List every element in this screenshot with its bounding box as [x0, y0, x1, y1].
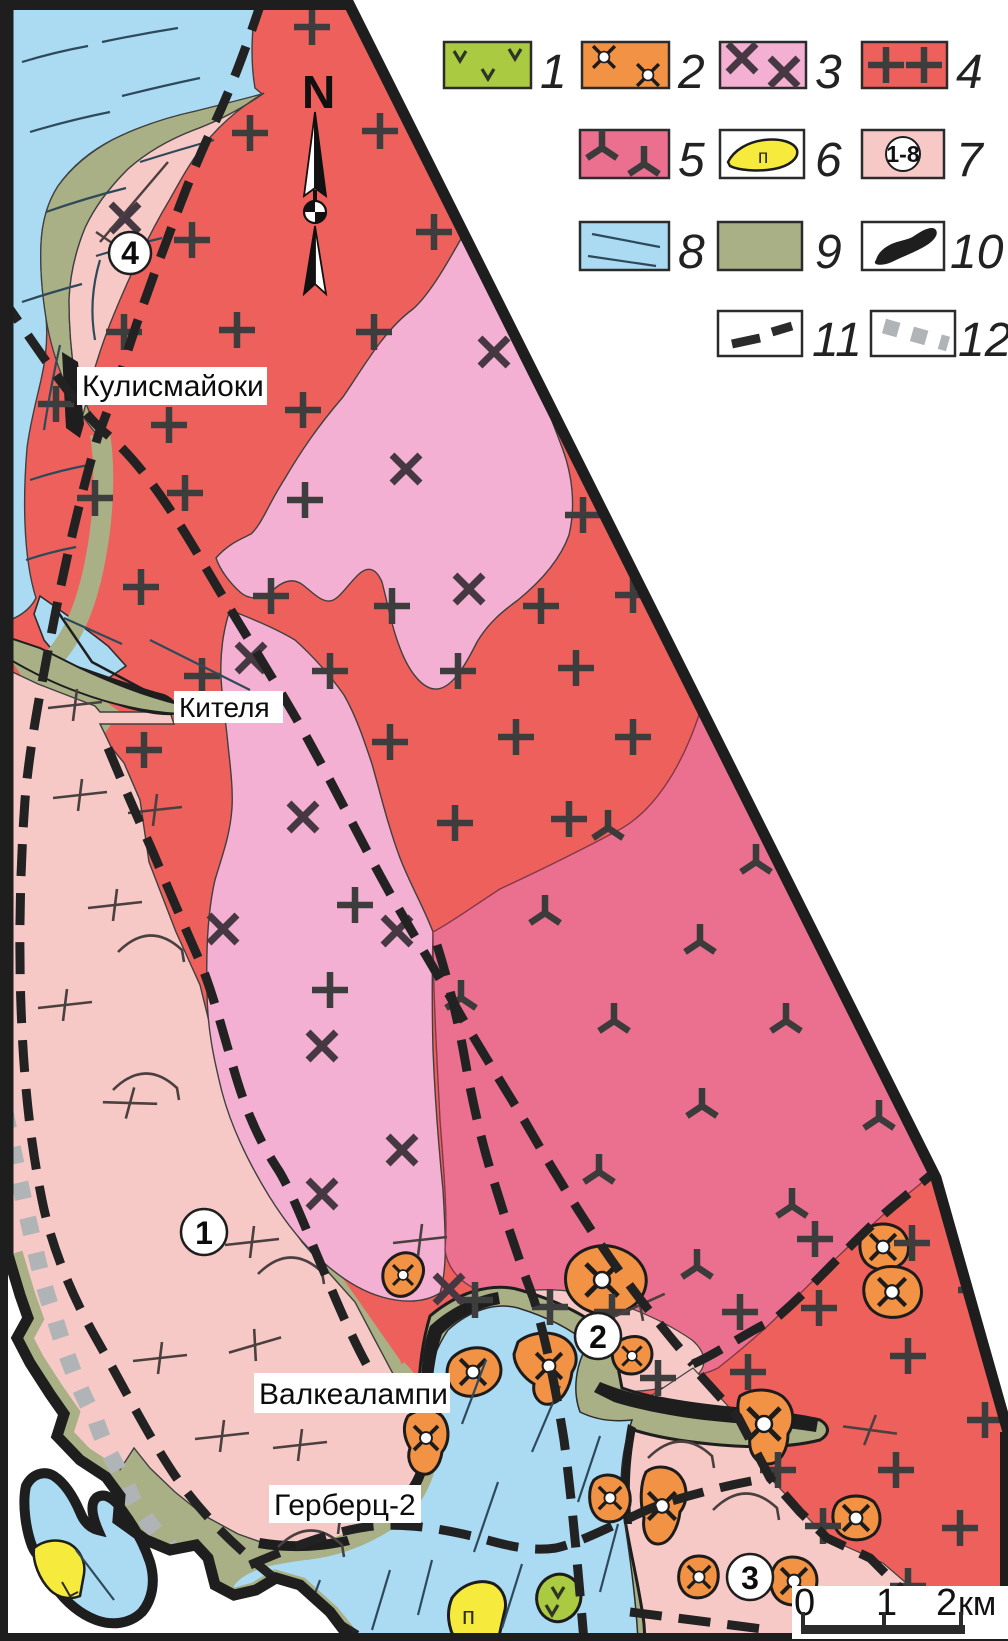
svg-text:км: км — [958, 1585, 996, 1623]
svg-text:11: 11 — [812, 314, 862, 367]
svg-text:2: 2 — [936, 1582, 957, 1624]
svg-text:7: 7 — [956, 134, 985, 187]
svg-text:4: 4 — [956, 46, 983, 99]
svg-text:8: 8 — [678, 226, 705, 279]
svg-text:12: 12 — [958, 314, 1008, 367]
svg-text:6: 6 — [815, 134, 842, 187]
svg-text:1: 1 — [195, 1215, 213, 1251]
svg-text:Герберц-2: Герберц-2 — [274, 1489, 416, 1522]
svg-text:1-8: 1-8 — [886, 141, 919, 167]
svg-text:Кителя: Кителя — [179, 692, 270, 723]
svg-text:Валкеалампи: Валкеалампи — [259, 1378, 448, 1411]
svg-text:N: N — [302, 66, 335, 118]
svg-text:10: 10 — [950, 226, 1004, 279]
svg-text:1: 1 — [876, 1582, 897, 1624]
svg-text:2: 2 — [677, 46, 705, 99]
svg-text:Кулисмайоки: Кулисмайоки — [82, 370, 264, 403]
svg-text:1: 1 — [540, 46, 567, 99]
svg-text:4: 4 — [121, 235, 139, 271]
svg-text:9: 9 — [815, 226, 842, 279]
svg-text:п: п — [758, 147, 768, 168]
svg-text:5: 5 — [678, 134, 705, 187]
svg-text:п: п — [462, 1603, 475, 1630]
svg-text:2: 2 — [589, 1319, 607, 1355]
svg-text:3: 3 — [815, 46, 842, 99]
svg-text:3: 3 — [741, 1560, 759, 1596]
